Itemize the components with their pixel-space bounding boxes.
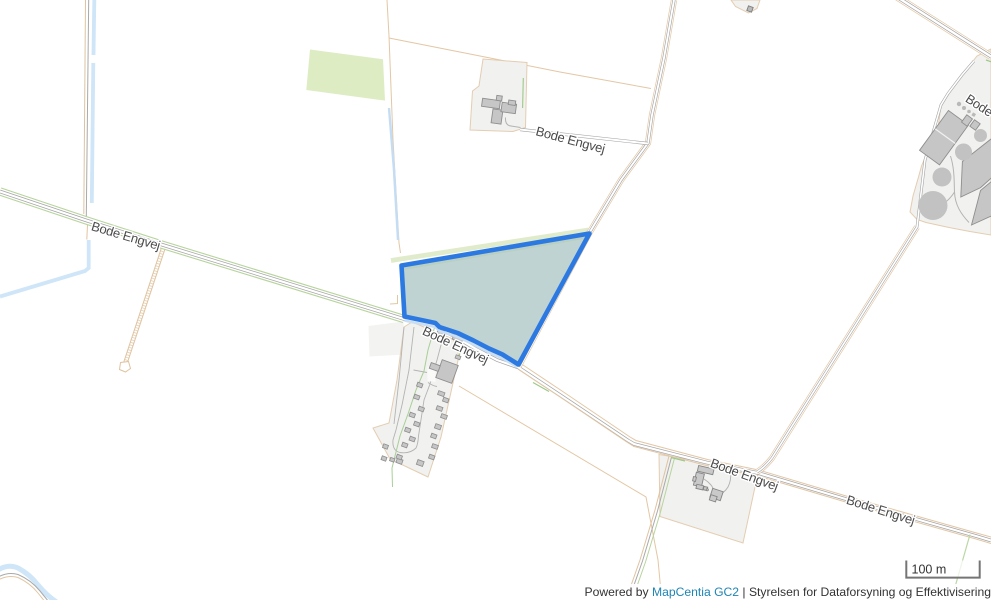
svg-text:100 m: 100 m: [912, 563, 947, 577]
svg-text:Powered by MapCentia GC2 | Sty: Powered by MapCentia GC2 | Styrelsen for…: [585, 585, 991, 599]
